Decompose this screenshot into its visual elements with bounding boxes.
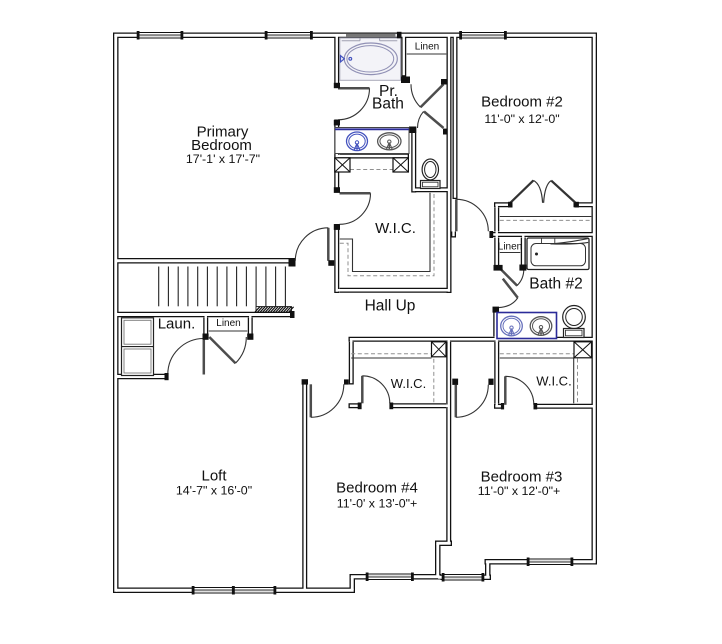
svg-text:Linen: Linen <box>415 42 439 53</box>
svg-text:Bath #2: Bath #2 <box>529 276 582 293</box>
svg-text:Linen: Linen <box>498 242 522 253</box>
svg-text:Laun.: Laun. <box>158 316 196 333</box>
svg-text:Bedroom #2: Bedroom #2 <box>481 94 563 111</box>
svg-text:11'-0" x 12'-0": 11'-0" x 12'-0" <box>484 112 559 126</box>
svg-text:Hall Up: Hall Up <box>365 298 416 315</box>
svg-text:Bedroom #4: Bedroom #4 <box>336 480 418 497</box>
svg-text:17'-1' x 17'-7": 17'-1' x 17'-7" <box>186 152 260 166</box>
svg-text:11'-0' x 13'-0"+: 11'-0' x 13'-0"+ <box>337 497 418 511</box>
svg-text:W.I.C.: W.I.C. <box>375 220 416 237</box>
svg-text:W.I.C.: W.I.C. <box>536 374 571 389</box>
svg-text:14'-7" x 16'-0": 14'-7" x 16'-0" <box>176 484 252 498</box>
svg-text:W.I.C.: W.I.C. <box>391 376 426 391</box>
svg-text:Bedroom #3: Bedroom #3 <box>481 469 563 486</box>
svg-text:Loft: Loft <box>201 468 227 485</box>
svg-text:11'-0" x 12'-0"+: 11'-0" x 12'-0"+ <box>478 484 561 498</box>
svg-text:Linen: Linen <box>216 318 240 329</box>
svg-text:Bath: Bath <box>372 96 404 113</box>
